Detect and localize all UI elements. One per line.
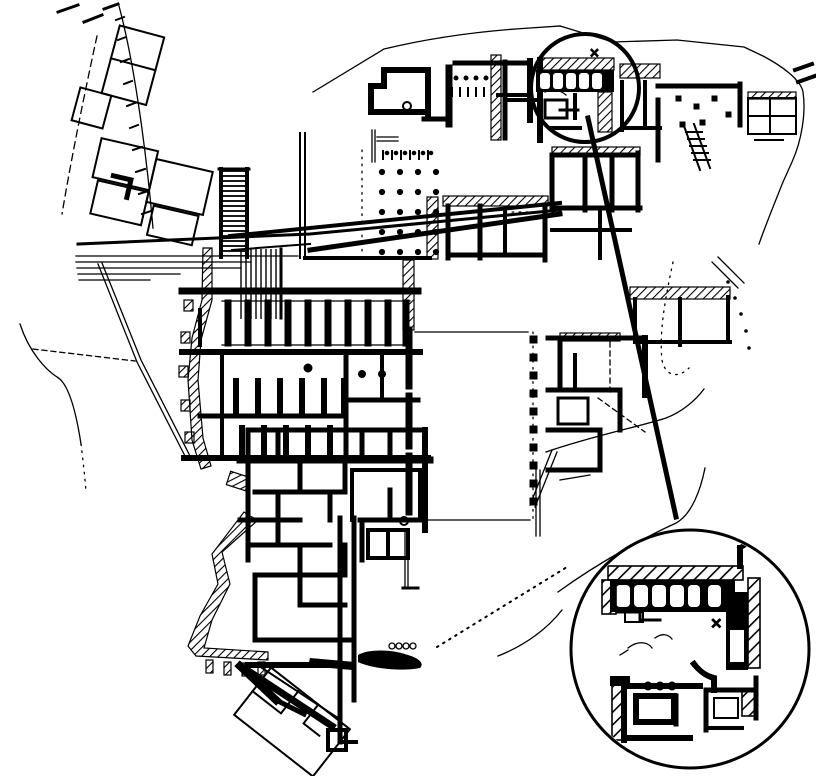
site-plan-canvas: × xyxy=(0,0,816,776)
column-base-dot xyxy=(304,364,312,372)
site-plan-figure: × xyxy=(0,0,816,776)
inset-cross-mark: × xyxy=(710,614,723,632)
site-detail-cross-mark: × xyxy=(589,46,600,61)
magnified-inset: × xyxy=(571,530,809,768)
